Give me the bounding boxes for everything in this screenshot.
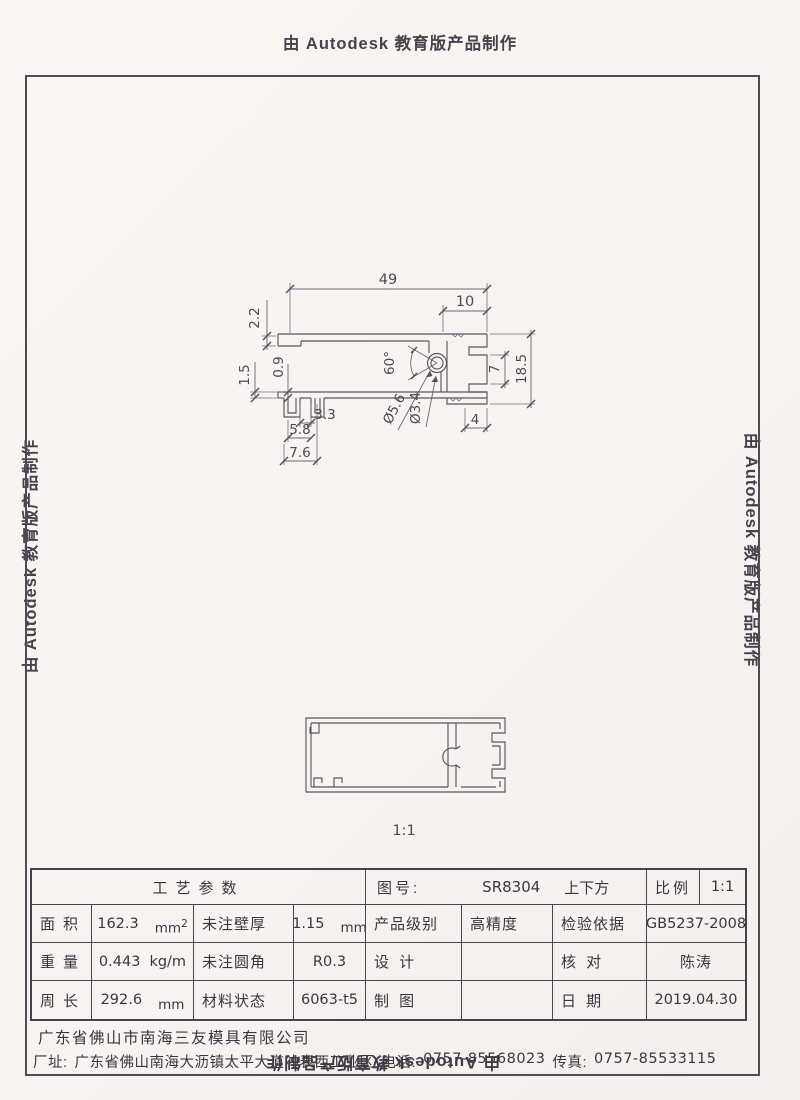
dim-hook-gap: 3.3: [314, 407, 335, 423]
design-value: [462, 943, 553, 981]
material-label: 材料状态: [194, 981, 294, 1019]
perimeter-label: 周长: [32, 981, 92, 1019]
wall-thickness-value: 1.15: [294, 916, 325, 932]
area-value-cell: 162.3 mm2: [92, 905, 194, 943]
dim-top-wall: 2.2: [247, 307, 263, 328]
check-label: 核 对: [553, 943, 647, 981]
knurl-marks: [450, 334, 464, 401]
dim-boss-outer-dia: Ø5.6: [380, 391, 409, 427]
drawing-number-value: SR8304: [482, 878, 540, 896]
draft-label: 制 图: [366, 981, 462, 1019]
product-grade-value: 高精度: [462, 905, 553, 943]
material-value: 6063-t5: [294, 981, 366, 1019]
standard-label: 检验依据: [553, 905, 647, 943]
fillet-label: 未注圆角: [194, 943, 294, 981]
dim-hook-outer: 7.6: [289, 445, 310, 461]
weight-unit: kg/m: [149, 954, 186, 970]
weight-value-cell: 0.443 kg/m: [92, 943, 194, 981]
perimeter-value: 292.6: [101, 992, 143, 1008]
perimeter-unit: mm: [158, 997, 184, 1019]
dim-hook-inner: 5.8: [289, 422, 310, 438]
drawing-name: 上下方: [564, 877, 609, 898]
fax-number: 0757-85533115: [594, 1051, 716, 1072]
area-unit: mm2: [155, 918, 188, 943]
weight-value: 0.443: [99, 954, 141, 970]
autodesk-watermark-bottom: 由 Autodesk 教育版产品制作: [266, 1052, 500, 1076]
design-label: 设 计: [366, 943, 462, 981]
profile-screw-channel: [443, 746, 460, 768]
area-value: 162.3: [97, 916, 139, 932]
dimensioned-section-view: 49 10 2.2 1.5 0.9 3.3 5.8 7.6 60° Ø5.6 Ø…: [237, 272, 535, 465]
actual-size-profile-view: 1:1: [306, 718, 505, 839]
dim-leg-width: 4: [471, 412, 480, 428]
drawing-number-label: 图号:: [366, 877, 420, 898]
date-value: 2019.04.30: [647, 981, 745, 1019]
weight-label: 重量: [32, 943, 92, 981]
dim-overall-height: 18.5: [514, 354, 530, 384]
date-label: 日 期: [553, 981, 647, 1019]
right-channel-outline: [447, 334, 487, 404]
profile-outer-outline: [306, 718, 505, 792]
dim-slot-height: 7: [487, 365, 503, 374]
dim-bottom-wall: 1.5: [237, 364, 253, 385]
dim-boss-angle: 60°: [382, 351, 398, 375]
dim-overall-width: 49: [379, 272, 397, 288]
perimeter-value-cell: 292.6 mm: [92, 981, 194, 1019]
scale-value: 1:1: [700, 870, 745, 905]
address-label: 厂址:: [33, 1051, 68, 1072]
product-grade-label: 产品级别: [366, 905, 462, 943]
dim-channel-width: 10: [456, 294, 474, 310]
scale-label: 比例: [647, 870, 700, 905]
drawing-number-cell: 图号: SR8304 上下方: [366, 870, 647, 905]
wall-thickness-cell: 1.15 mm: [294, 905, 366, 943]
title-block-table: 工艺参数 图号: SR8304 上下方 比例 1:1 面积 162.3 mm2 …: [30, 868, 747, 1021]
dim-boss-inner-dia: Ø3.4: [408, 392, 424, 424]
draft-value: [462, 981, 553, 1019]
fillet-value: R0.3: [294, 943, 366, 981]
check-value: 陈涛: [647, 943, 745, 981]
profile-inner-lines: [310, 723, 500, 787]
scale-caption: 1:1: [392, 823, 415, 839]
fax-label: 传真:: [553, 1051, 588, 1072]
standard-value: GB5237-2008: [647, 905, 745, 943]
company-name: 广东省佛山市南海三友模具有限公司: [38, 1026, 310, 1048]
dim-hook-wall: 0.9: [271, 356, 287, 377]
process-params-header: 工艺参数: [32, 870, 366, 905]
bottom-wall-outline: [278, 392, 487, 398]
area-label: 面积: [32, 905, 92, 943]
wall-thickness-unit: mm: [341, 920, 367, 942]
wall-thickness-label: 未注壁厚: [194, 905, 294, 943]
scanned-drawing-sheet: 由 Autodesk 教育版产品制作 由 Autodesk 教育版产品制作 由 …: [0, 0, 800, 1100]
